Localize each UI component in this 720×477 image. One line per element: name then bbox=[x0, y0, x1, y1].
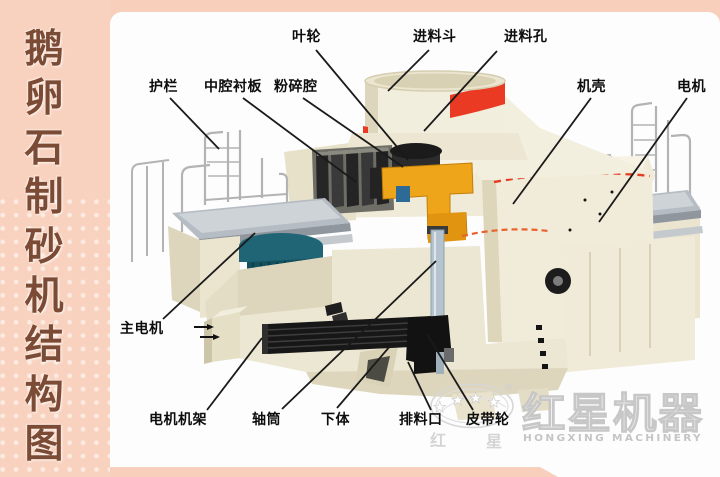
title-char: 制 bbox=[0, 173, 88, 222]
title-char: 机 bbox=[0, 272, 88, 321]
title-char: 鹅 bbox=[0, 25, 88, 74]
diagram-panel bbox=[110, 12, 720, 477]
title-char: 构 bbox=[0, 371, 88, 420]
title-char: 卵 bbox=[0, 74, 88, 123]
title-char: 结 bbox=[0, 321, 88, 370]
title-char: 砂 bbox=[0, 223, 88, 272]
title-char: 石 bbox=[0, 124, 88, 173]
page-title: 鹅卵石制砂机结构图 bbox=[0, 25, 88, 470]
title-char: 图 bbox=[0, 420, 88, 469]
sidebar-title-strip: 鹅卵石制砂机结构图 bbox=[0, 0, 110, 477]
